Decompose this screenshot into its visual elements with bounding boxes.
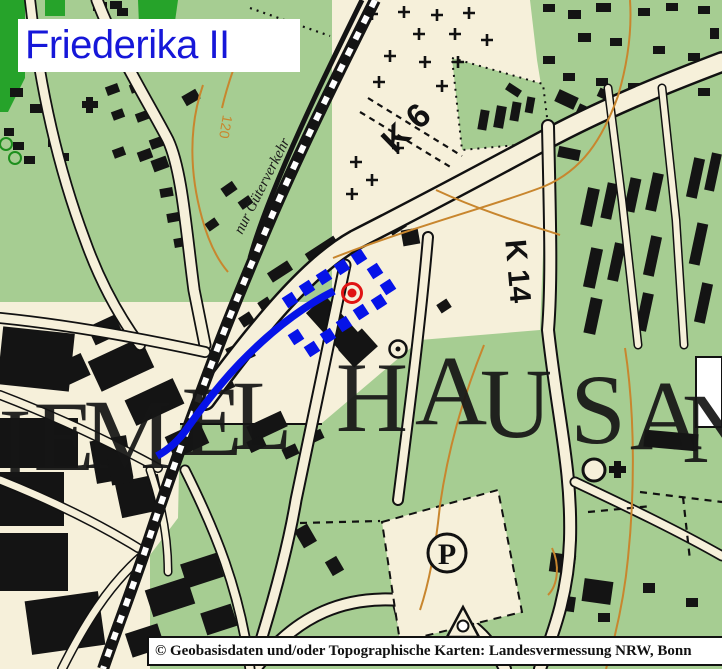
building xyxy=(24,156,35,164)
building xyxy=(25,591,106,655)
building xyxy=(4,128,14,136)
map-title: Friederika II xyxy=(25,23,230,68)
building xyxy=(10,88,23,97)
building xyxy=(110,1,122,9)
place-name-letter: N xyxy=(682,373,722,484)
building xyxy=(610,38,622,46)
building xyxy=(643,583,655,593)
building xyxy=(638,8,650,16)
building xyxy=(653,46,665,54)
building xyxy=(543,4,555,12)
map-title-box: Friederika II xyxy=(18,19,300,72)
building xyxy=(710,28,719,39)
building xyxy=(698,6,710,14)
road-label-k14: K 14 xyxy=(498,238,536,304)
well-symbol xyxy=(390,341,407,358)
building xyxy=(666,3,678,11)
place-name-letter: A xyxy=(415,335,487,446)
topographic-map: IEMELHAUSAN K 6 K 14 nur Güterverkehr 12… xyxy=(0,0,722,669)
building xyxy=(117,8,128,16)
building xyxy=(30,104,42,113)
building xyxy=(596,3,611,12)
building xyxy=(13,142,24,150)
attribution-bar: © Geobasisdaten und/oder Topographische … xyxy=(147,636,722,666)
building xyxy=(568,10,581,19)
forest-patch xyxy=(45,0,65,16)
svg-text:P: P xyxy=(438,538,456,571)
building xyxy=(598,613,610,622)
place-name-letter: L xyxy=(231,360,292,471)
building xyxy=(582,578,614,605)
building xyxy=(698,88,710,96)
building xyxy=(543,56,555,64)
parking-symbol: P xyxy=(428,534,466,572)
place-name-letter: M xyxy=(84,379,173,490)
building xyxy=(563,73,575,81)
building xyxy=(86,97,93,113)
building xyxy=(686,598,698,607)
attribution-text: © Geobasisdaten und/oder Topographische … xyxy=(155,643,692,660)
building xyxy=(0,533,68,591)
place-name-letter: S xyxy=(570,354,626,465)
building xyxy=(578,33,591,42)
place-name-letter: I xyxy=(0,388,32,499)
map-screenshot: IEMELHAUSAN K 6 K 14 nur Güterverkehr 12… xyxy=(0,0,722,669)
place-name-letter: U xyxy=(480,348,552,459)
